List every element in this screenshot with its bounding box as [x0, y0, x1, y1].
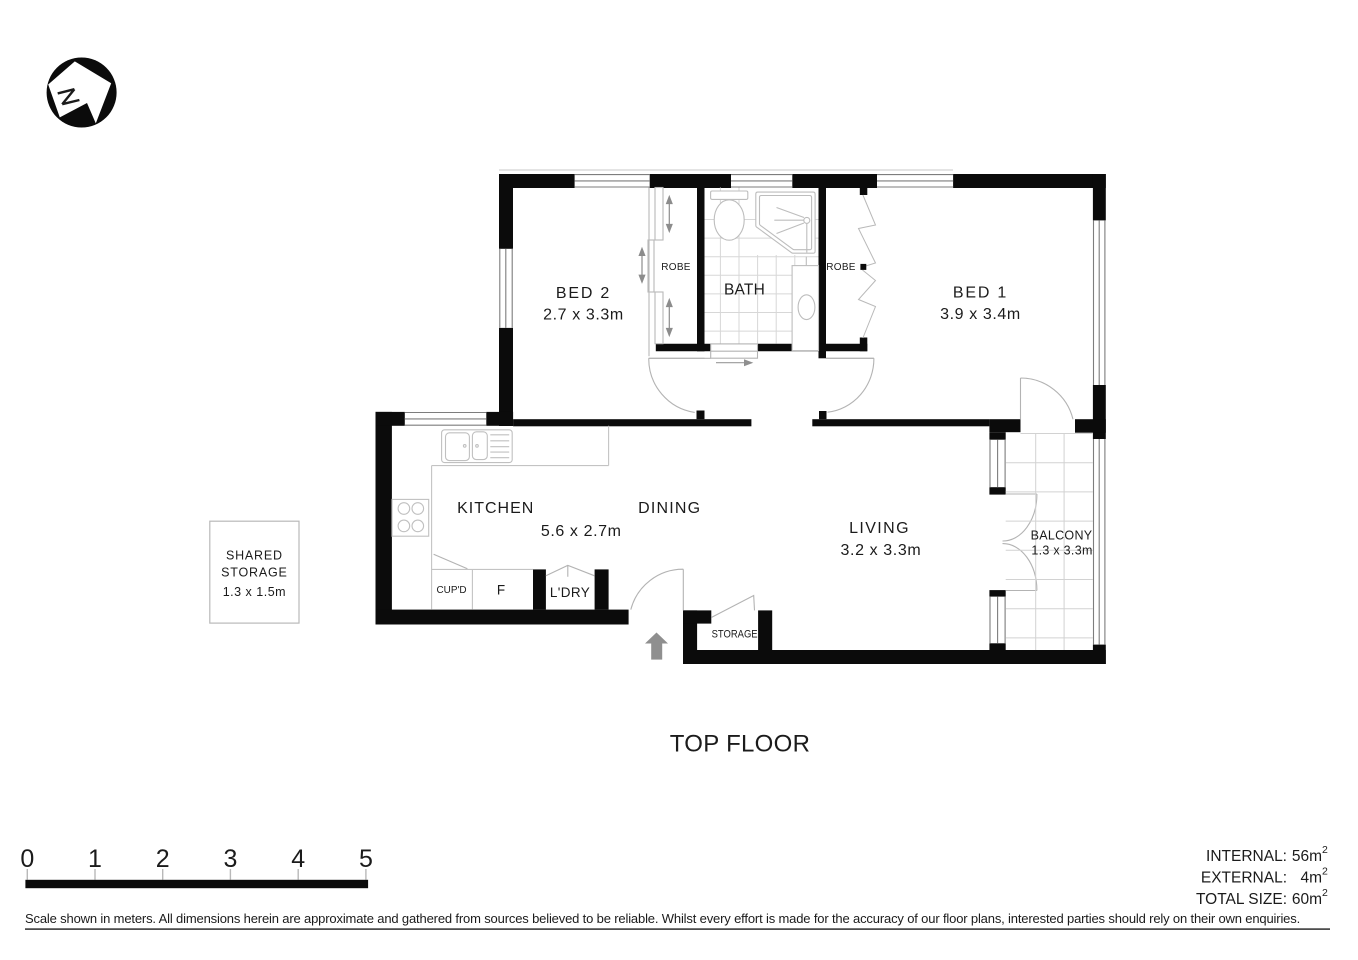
svg-text:BED 1: BED 1	[953, 285, 1008, 302]
svg-text:L'DRY: L'DRY	[550, 585, 590, 600]
svg-text:LIVING: LIVING	[849, 520, 910, 537]
svg-text:BATH: BATH	[724, 282, 765, 299]
svg-text:1.3 x 3.3m: 1.3 x 3.3m	[1031, 544, 1092, 558]
svg-text:3: 3	[223, 845, 237, 873]
svg-text:Scale shown in meters. All dim: Scale shown in meters. All dimensions he…	[25, 911, 1300, 926]
svg-text:56m: 56m	[1292, 848, 1322, 865]
svg-text:BALCONY: BALCONY	[1031, 529, 1093, 543]
svg-text:DINING: DINING	[638, 500, 701, 517]
svg-text:1.3 x 1.5m: 1.3 x 1.5m	[223, 585, 286, 599]
svg-text:ROBE: ROBE	[661, 262, 691, 273]
svg-text:KITCHEN: KITCHEN	[457, 500, 534, 517]
svg-text:BED 2: BED 2	[556, 285, 611, 302]
svg-text:F: F	[497, 583, 505, 598]
svg-text:0: 0	[20, 845, 34, 873]
svg-text:5.6 x 2.7m: 5.6 x 2.7m	[541, 523, 622, 540]
svg-text:TOTAL SIZE:: TOTAL SIZE:	[1196, 891, 1287, 908]
svg-text:2: 2	[1322, 866, 1328, 878]
svg-text:2: 2	[1322, 844, 1328, 856]
svg-text:STORAGE: STORAGE	[221, 566, 288, 580]
svg-text:3.2 x 3.3m: 3.2 x 3.3m	[841, 542, 922, 559]
svg-text:2.7 x 3.3m: 2.7 x 3.3m	[543, 307, 624, 324]
svg-text:INTERNAL:: INTERNAL:	[1206, 848, 1287, 865]
svg-text:2: 2	[1322, 887, 1328, 899]
svg-text:SHARED: SHARED	[226, 549, 283, 563]
svg-text:EXTERNAL:: EXTERNAL:	[1201, 870, 1287, 887]
svg-text:1: 1	[88, 845, 102, 873]
svg-text:CUP'D: CUP'D	[437, 585, 467, 596]
svg-text:2: 2	[156, 845, 170, 873]
svg-text:4: 4	[291, 845, 305, 873]
svg-text:4m: 4m	[1300, 870, 1322, 887]
svg-text:60m: 60m	[1292, 891, 1322, 908]
svg-text:STORAGE: STORAGE	[712, 629, 758, 641]
svg-text:TOP FLOOR: TOP FLOOR	[670, 731, 811, 758]
svg-text:3.9 x 3.4m: 3.9 x 3.4m	[940, 306, 1021, 323]
svg-text:ROBE: ROBE	[826, 262, 856, 273]
svg-text:5: 5	[359, 845, 373, 873]
